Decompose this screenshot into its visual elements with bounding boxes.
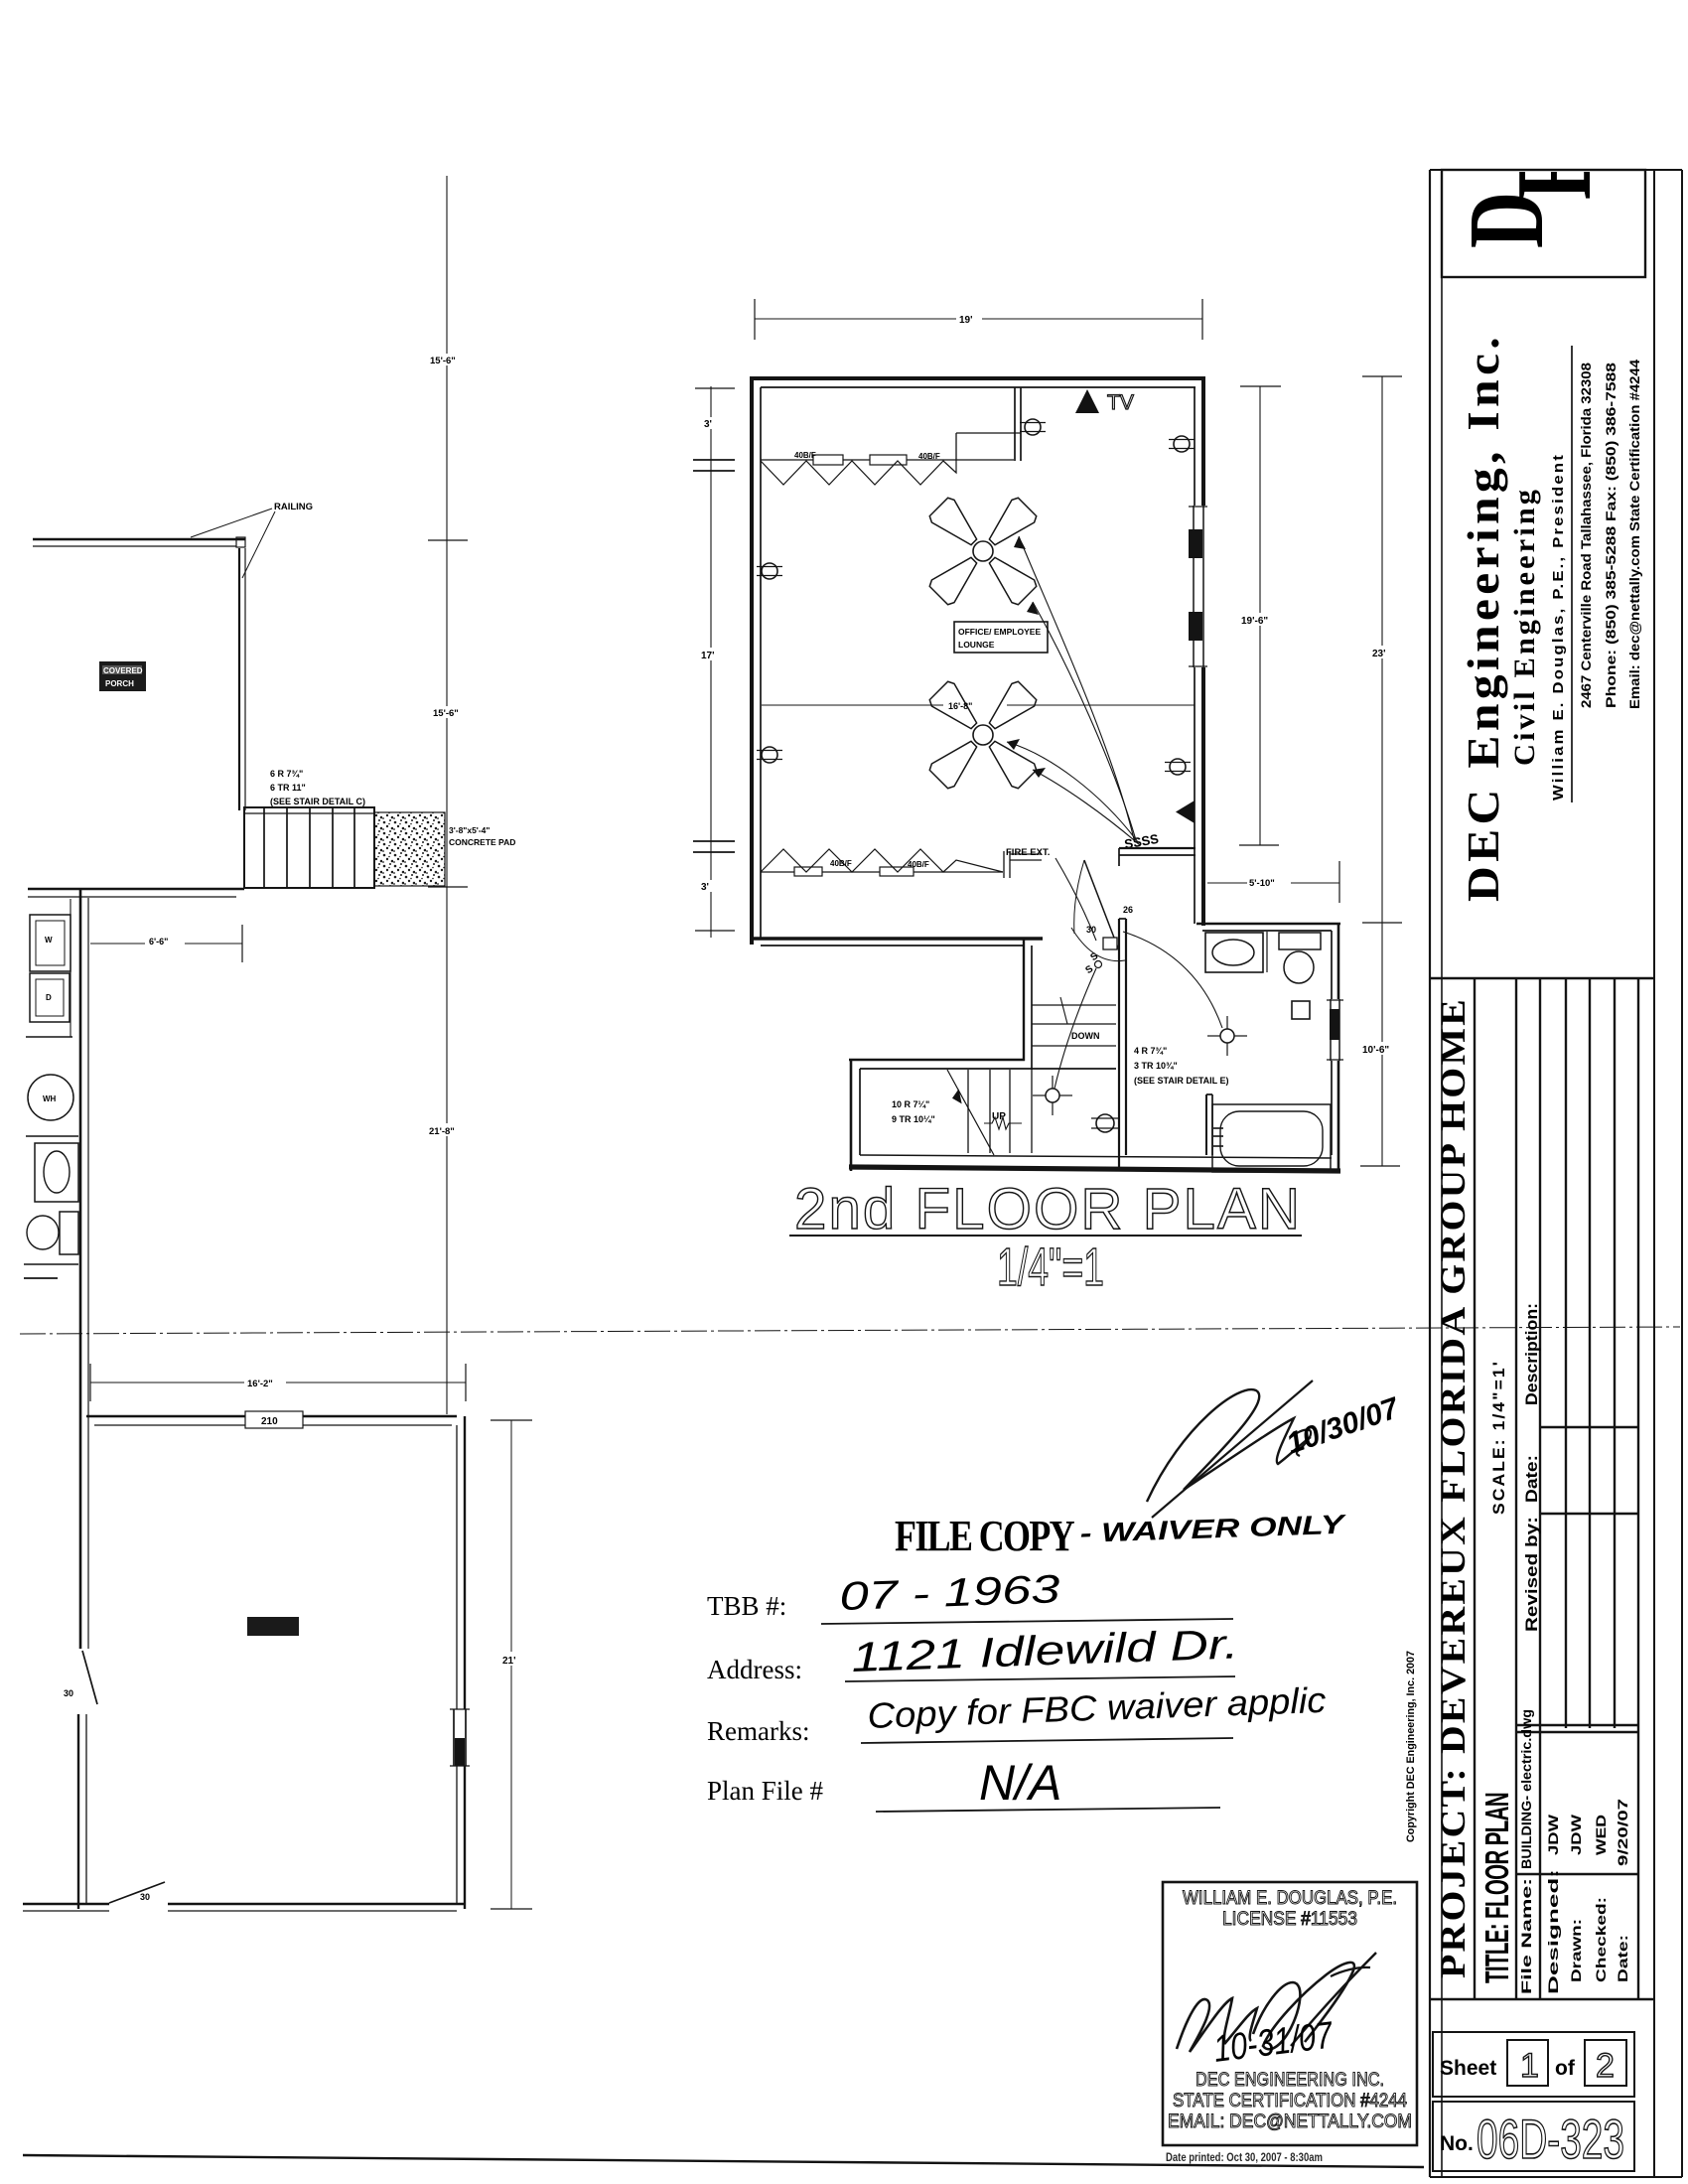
- svg-text:Plan File #: Plan File #: [707, 1776, 824, 1806]
- svg-text:No.: No.: [1440, 2132, 1474, 2155]
- svg-text:6'-6": 6'-6": [149, 937, 168, 946]
- svg-text:15'-6": 15'-6": [433, 708, 459, 719]
- svg-text:RAILING: RAILING: [274, 502, 313, 512]
- svg-text:21': 21': [502, 1656, 516, 1667]
- svg-text:TBB #:: TBB #:: [707, 1591, 786, 1621]
- svg-text:07 - 1963: 07 - 1963: [839, 1567, 1060, 1619]
- svg-text:06D-323: 06D-323: [1477, 2108, 1624, 2170]
- svg-text:TV: TV: [1107, 391, 1134, 414]
- svg-text:PORCH: PORCH: [105, 679, 134, 688]
- svg-text:21'-8": 21'-8": [429, 1126, 455, 1137]
- svg-text:210: 210: [261, 1416, 278, 1427]
- svg-text:Copyright DEC Engineering, Inc: Copyright DEC Engineering, Inc. 2007: [1405, 1651, 1417, 1842]
- svg-text:Designed:: Designed:: [1545, 1869, 1561, 1994]
- svg-text:BUILDING- electric.dwg: BUILDING- electric.dwg: [1518, 1709, 1534, 1869]
- svg-text:Drawn:: Drawn:: [1568, 1919, 1584, 1982]
- svg-text:DEC Engineering, Inc.: DEC Engineering, Inc.: [1458, 333, 1508, 902]
- svg-text:Email: dec@nettally.com Sta: Email: dec@nettally.com State Certificat…: [1627, 359, 1642, 709]
- svg-text:LICENSE #11553: LICENSE #11553: [1222, 1909, 1357, 1930]
- svg-text:3': 3': [704, 419, 712, 430]
- svg-text:Revised by:: Revised by:: [1522, 1517, 1541, 1632]
- svg-text:CONCRETE PAD: CONCRETE PAD: [449, 837, 515, 847]
- svg-text:1/4"=1: 1/4"=1: [997, 1238, 1104, 1297]
- svg-text:FILE COPY: FILE COPY: [895, 1512, 1074, 1560]
- svg-text:Sheet: Sheet: [1440, 2057, 1496, 2080]
- svg-text:Date:: Date:: [1522, 1455, 1541, 1503]
- svg-text:23': 23': [1372, 649, 1386, 659]
- svg-text:10'-6": 10'-6": [1362, 1045, 1389, 1056]
- svg-text:TITLE: FLOOR PLAN: TITLE: FLOOR PLAN: [1478, 1793, 1515, 1983]
- svg-text:40B/F: 40B/F: [918, 452, 940, 461]
- svg-text:Checked:: Checked:: [1593, 1897, 1609, 1982]
- svg-text:30: 30: [64, 1688, 73, 1698]
- svg-text:6 TR 11": 6 TR 11": [270, 783, 306, 793]
- svg-text:40B/F: 40B/F: [908, 860, 929, 869]
- svg-text:9/20/07: 9/20/07: [1615, 1799, 1630, 1866]
- svg-text:2467 Centerville Road Tallah: 2467 Centerville Road Tallahassee, Flori…: [1579, 362, 1594, 708]
- svg-text:16'-2": 16'-2": [247, 1379, 273, 1389]
- svg-text:Phone: (850) 385-5288 Fax: Phone: (850) 385-5288 Fax: (850) 386-758…: [1604, 362, 1618, 708]
- svg-text:17': 17': [701, 651, 715, 661]
- svg-text:SCALE: 1/4"=1': SCALE: 1/4"=1': [1489, 1360, 1508, 1515]
- svg-text:3': 3': [701, 882, 709, 893]
- svg-text:DOWN: DOWN: [1071, 1031, 1100, 1041]
- svg-text:WILLIAM E. DOUGLAS, P.E.: WILLIAM E. DOUGLAS, P.E.: [1183, 1888, 1397, 1909]
- svg-text:30: 30: [1086, 925, 1096, 935]
- svg-text:26: 26: [1123, 905, 1133, 915]
- svg-text:1: 1: [1520, 2047, 1539, 2085]
- svg-text:15'-6": 15'-6": [430, 356, 456, 366]
- svg-text:3'-8"x5'-4": 3'-8"x5'-4": [449, 825, 490, 835]
- svg-text:Date:: Date:: [1615, 1935, 1630, 1982]
- svg-text:STATE CERTIFICATION #4244: STATE CERTIFICATION #4244: [1173, 2091, 1407, 2111]
- svg-text:of: of: [1555, 2057, 1576, 2080]
- svg-text:N/A: N/A: [979, 1755, 1061, 1811]
- svg-text:(SEE STAIR DETAIL C): (SEE STAIR DETAIL C): [270, 797, 365, 806]
- svg-text:OFFICE/ EMPLOYEE: OFFICE/ EMPLOYEE: [958, 627, 1041, 637]
- svg-text:William E. Douglas, P.E., Pres: William E. Douglas, P.E., President: [1550, 453, 1567, 801]
- svg-text:WH: WH: [43, 1094, 57, 1103]
- svg-text:4 R 7¾": 4 R 7¾": [1134, 1046, 1167, 1056]
- svg-text:10 R 7¼": 10 R 7¼": [892, 1099, 929, 1109]
- svg-text:DEC ENGINEERING INC.: DEC ENGINEERING INC.: [1196, 2070, 1384, 2091]
- svg-text:Remarks:: Remarks:: [707, 1716, 809, 1746]
- svg-text:(SEE STAIR DETAIL E): (SEE STAIR DETAIL E): [1134, 1076, 1229, 1086]
- svg-text:Civil Engineering: Civil Engineering: [1508, 487, 1541, 766]
- svg-text:LOUNGE: LOUNGE: [958, 640, 995, 650]
- svg-text:16'-8": 16'-8": [948, 701, 972, 711]
- svg-text:2: 2: [1596, 2047, 1615, 2085]
- svg-text:JDW: JDW: [1545, 1814, 1561, 1855]
- svg-text:FIRE EXT.: FIRE EXT.: [1006, 847, 1050, 858]
- svg-text:COVERED: COVERED: [103, 666, 143, 675]
- svg-text:3 TR 10¾": 3 TR 10¾": [1134, 1061, 1178, 1071]
- svg-text:5'-10": 5'-10": [1249, 878, 1275, 889]
- svg-text:PROJECT: DEVEREUX FLORIDA GROU: PROJECT: DEVEREUX FLORIDA GROUP HOME: [1433, 997, 1473, 1978]
- svg-text:30: 30: [140, 1892, 150, 1902]
- svg-text:Date printed: Oct 30, 2007 - 8: Date printed: Oct 30, 2007 - 8:30am: [1166, 2150, 1323, 2164]
- svg-text:19': 19': [959, 315, 973, 326]
- svg-text:EMAIL: DEC@NETTALLY.COM: EMAIL: DEC@NETTALLY.COM: [1168, 2111, 1412, 2132]
- svg-text:9 TR 10¼": 9 TR 10¼": [892, 1114, 935, 1124]
- svg-text:File Name:: File Name:: [1518, 1878, 1534, 1994]
- svg-text:2nd FLOOR PLAN: 2nd FLOOR PLAN: [794, 1177, 1302, 1241]
- svg-text:40B/F: 40B/F: [830, 859, 852, 868]
- svg-text:WED: WED: [1593, 1815, 1609, 1855]
- svg-text:Address:: Address:: [707, 1655, 802, 1684]
- svg-text:Description:: Description:: [1522, 1303, 1541, 1405]
- svg-text:19'-6": 19'-6": [1241, 616, 1268, 627]
- svg-text:6 R 7¾": 6 R 7¾": [270, 769, 303, 779]
- svg-text:D: D: [46, 993, 52, 1002]
- svg-text:40B/F: 40B/F: [794, 451, 816, 460]
- svg-text:W: W: [45, 936, 53, 945]
- svg-text:JDW: JDW: [1568, 1814, 1584, 1855]
